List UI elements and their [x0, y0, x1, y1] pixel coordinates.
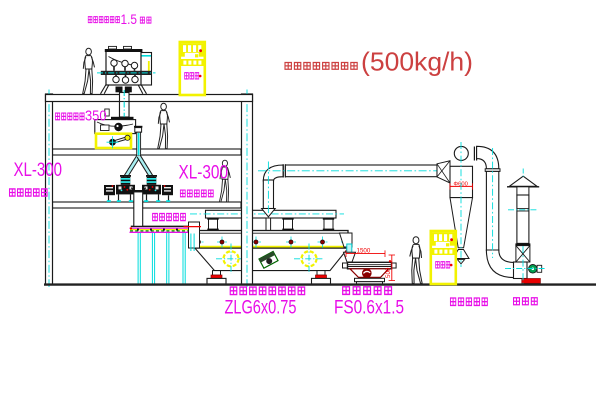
- svg-text:XL-300: XL-300: [14, 160, 63, 181]
- svg-text:1500: 1500: [357, 248, 371, 255]
- svg-text:500: 500: [385, 267, 392, 278]
- svg-text:1.5: 1.5: [121, 12, 138, 27]
- svg-text:350: 350: [85, 109, 107, 125]
- svg-text:FS0.6x1.5: FS0.6x1.5: [334, 298, 404, 319]
- svg-text:XL-300: XL-300: [179, 163, 229, 184]
- svg-text:ZLG6x0.75: ZLG6x0.75: [225, 298, 297, 319]
- svg-text:(500kg/h): (500kg/h): [361, 47, 473, 77]
